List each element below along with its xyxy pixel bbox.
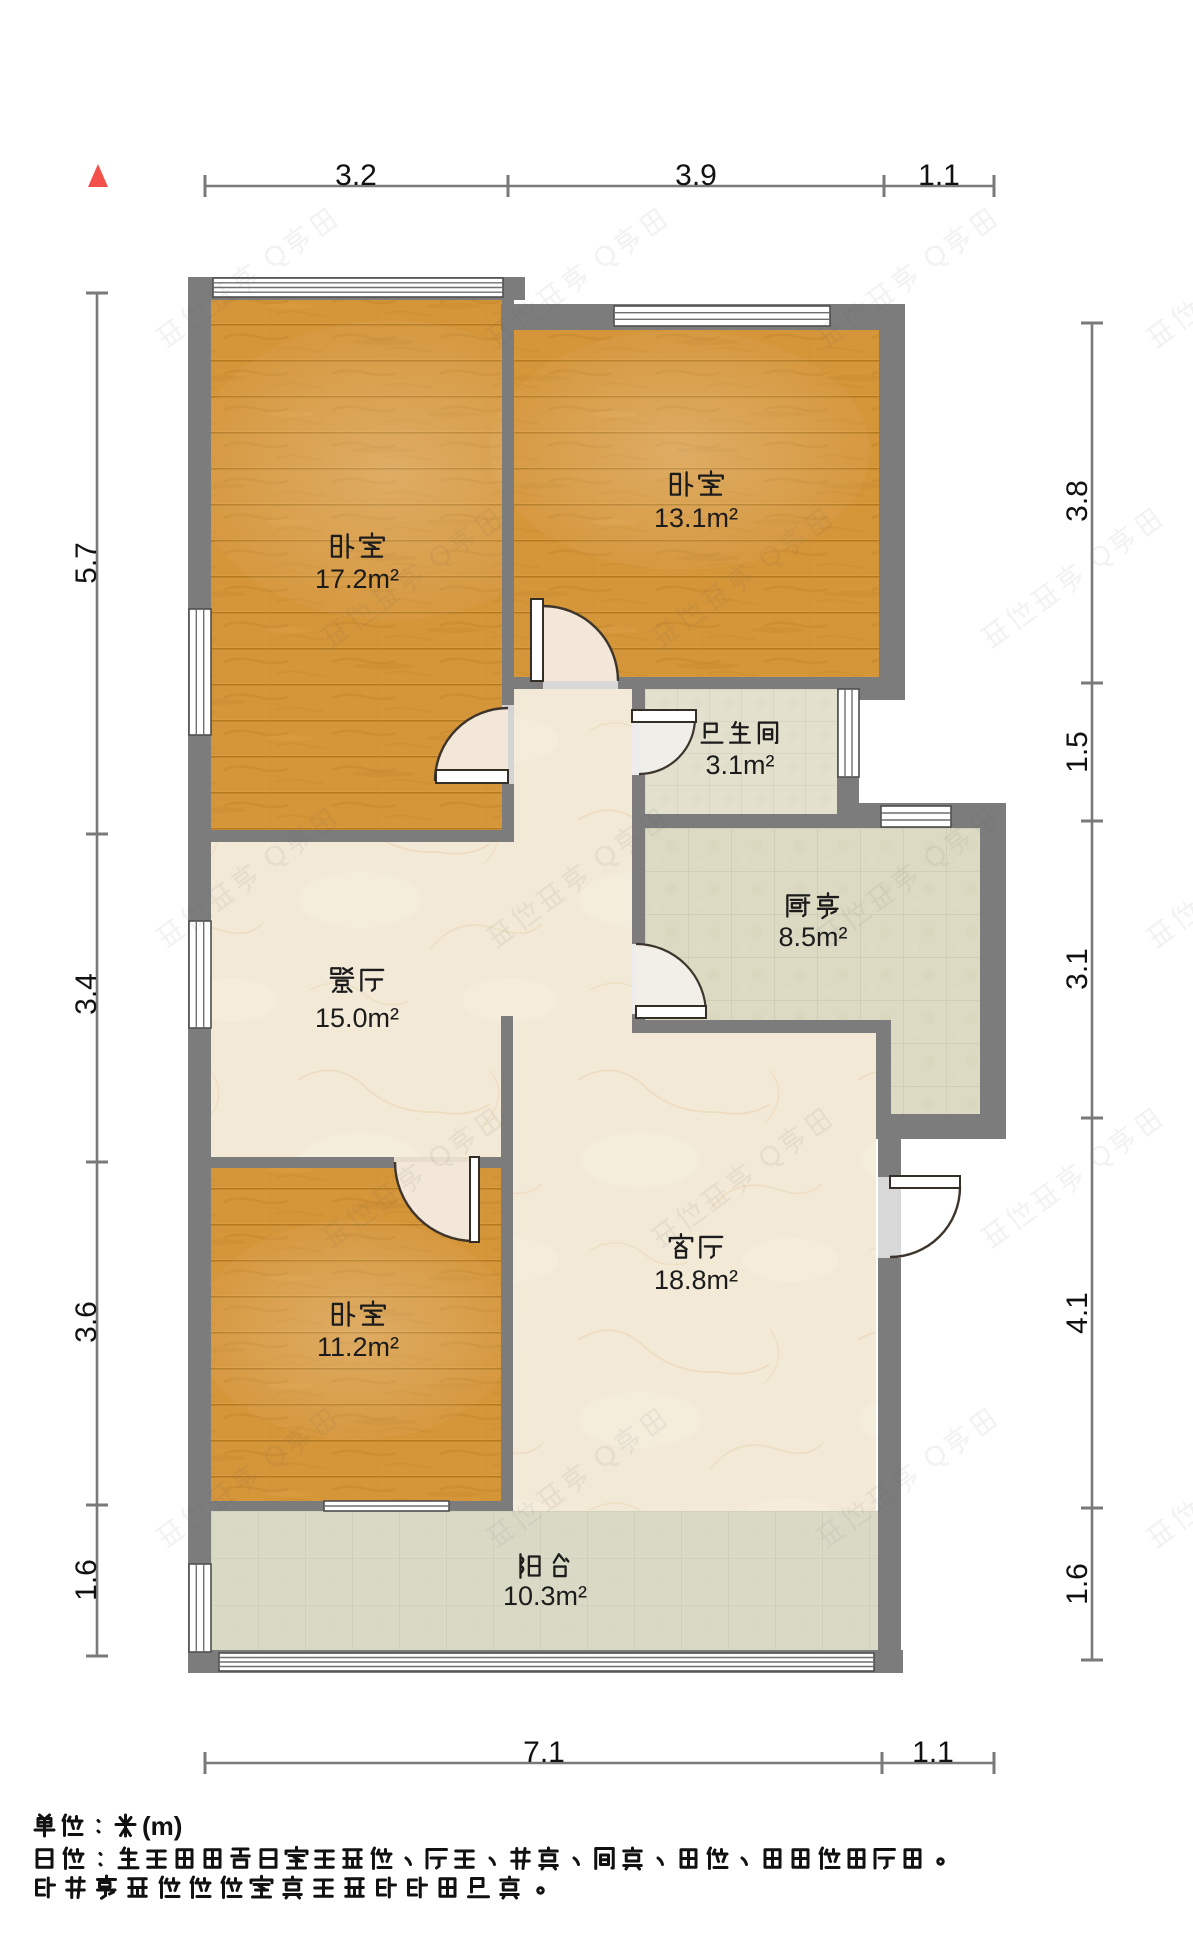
svg-text:1.1: 1.1 <box>918 159 960 192</box>
svg-text:18.8m²: 18.8m² <box>654 1265 738 1295</box>
svg-text:3.2: 3.2 <box>335 159 377 192</box>
svg-text:3.1m²: 3.1m² <box>705 750 774 780</box>
svg-text:3.6: 3.6 <box>70 1301 103 1343</box>
svg-text:3.9: 3.9 <box>675 159 717 192</box>
svg-text:1.6: 1.6 <box>70 1559 103 1601</box>
svg-text:1.5: 1.5 <box>1061 731 1094 773</box>
svg-text:3.1: 3.1 <box>1061 948 1094 990</box>
svg-text:17.2m²: 17.2m² <box>315 564 399 594</box>
svg-text:11.2m²: 11.2m² <box>317 1332 399 1362</box>
svg-text:1.1: 1.1 <box>912 1736 954 1769</box>
svg-text:13.1m²: 13.1m² <box>654 503 738 533</box>
svg-text:3.8: 3.8 <box>1061 480 1094 522</box>
svg-text:7.1: 7.1 <box>523 1736 565 1769</box>
svg-text:(m): (m) <box>142 1811 182 1841</box>
svg-text:15.0m²: 15.0m² <box>315 1003 399 1033</box>
svg-text:4.1: 4.1 <box>1061 1292 1094 1334</box>
svg-text:1.6: 1.6 <box>1061 1563 1094 1605</box>
svg-text:5.7: 5.7 <box>70 542 103 584</box>
svg-text:10.3m²: 10.3m² <box>503 1581 587 1611</box>
svg-text:3.4: 3.4 <box>70 973 103 1015</box>
svg-text:8.5m²: 8.5m² <box>778 922 847 952</box>
